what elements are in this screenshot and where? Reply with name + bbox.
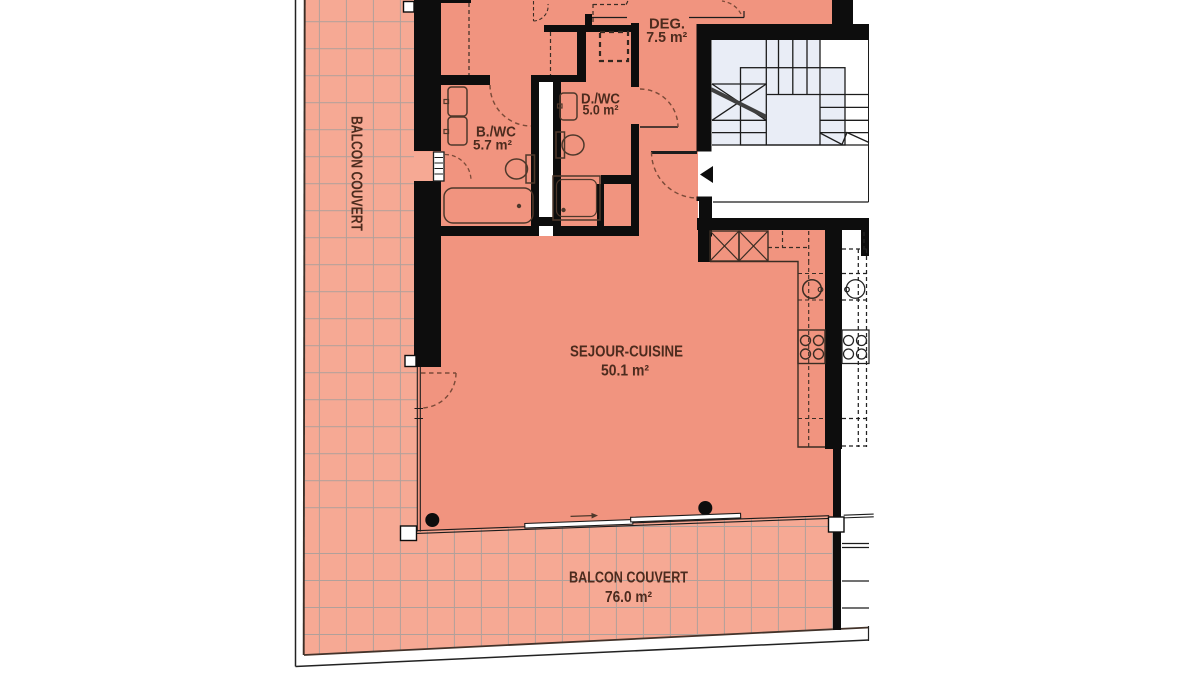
svg-text:BALCON COUVERT: BALCON COUVERT [348,116,365,231]
svg-text:SEJOUR-CUISINE: SEJOUR-CUISINE [570,344,683,361]
svg-text:50.1 m²: 50.1 m² [601,363,649,380]
svg-text:BALCON COUVERT: BALCON COUVERT [569,570,688,587]
svg-text:5.7 m²: 5.7 m² [473,137,512,153]
svg-text:5.0 m²: 5.0 m² [583,102,619,118]
svg-text:76.0 m²: 76.0 m² [605,589,652,606]
svg-text:7.5 m²: 7.5 m² [646,30,687,46]
